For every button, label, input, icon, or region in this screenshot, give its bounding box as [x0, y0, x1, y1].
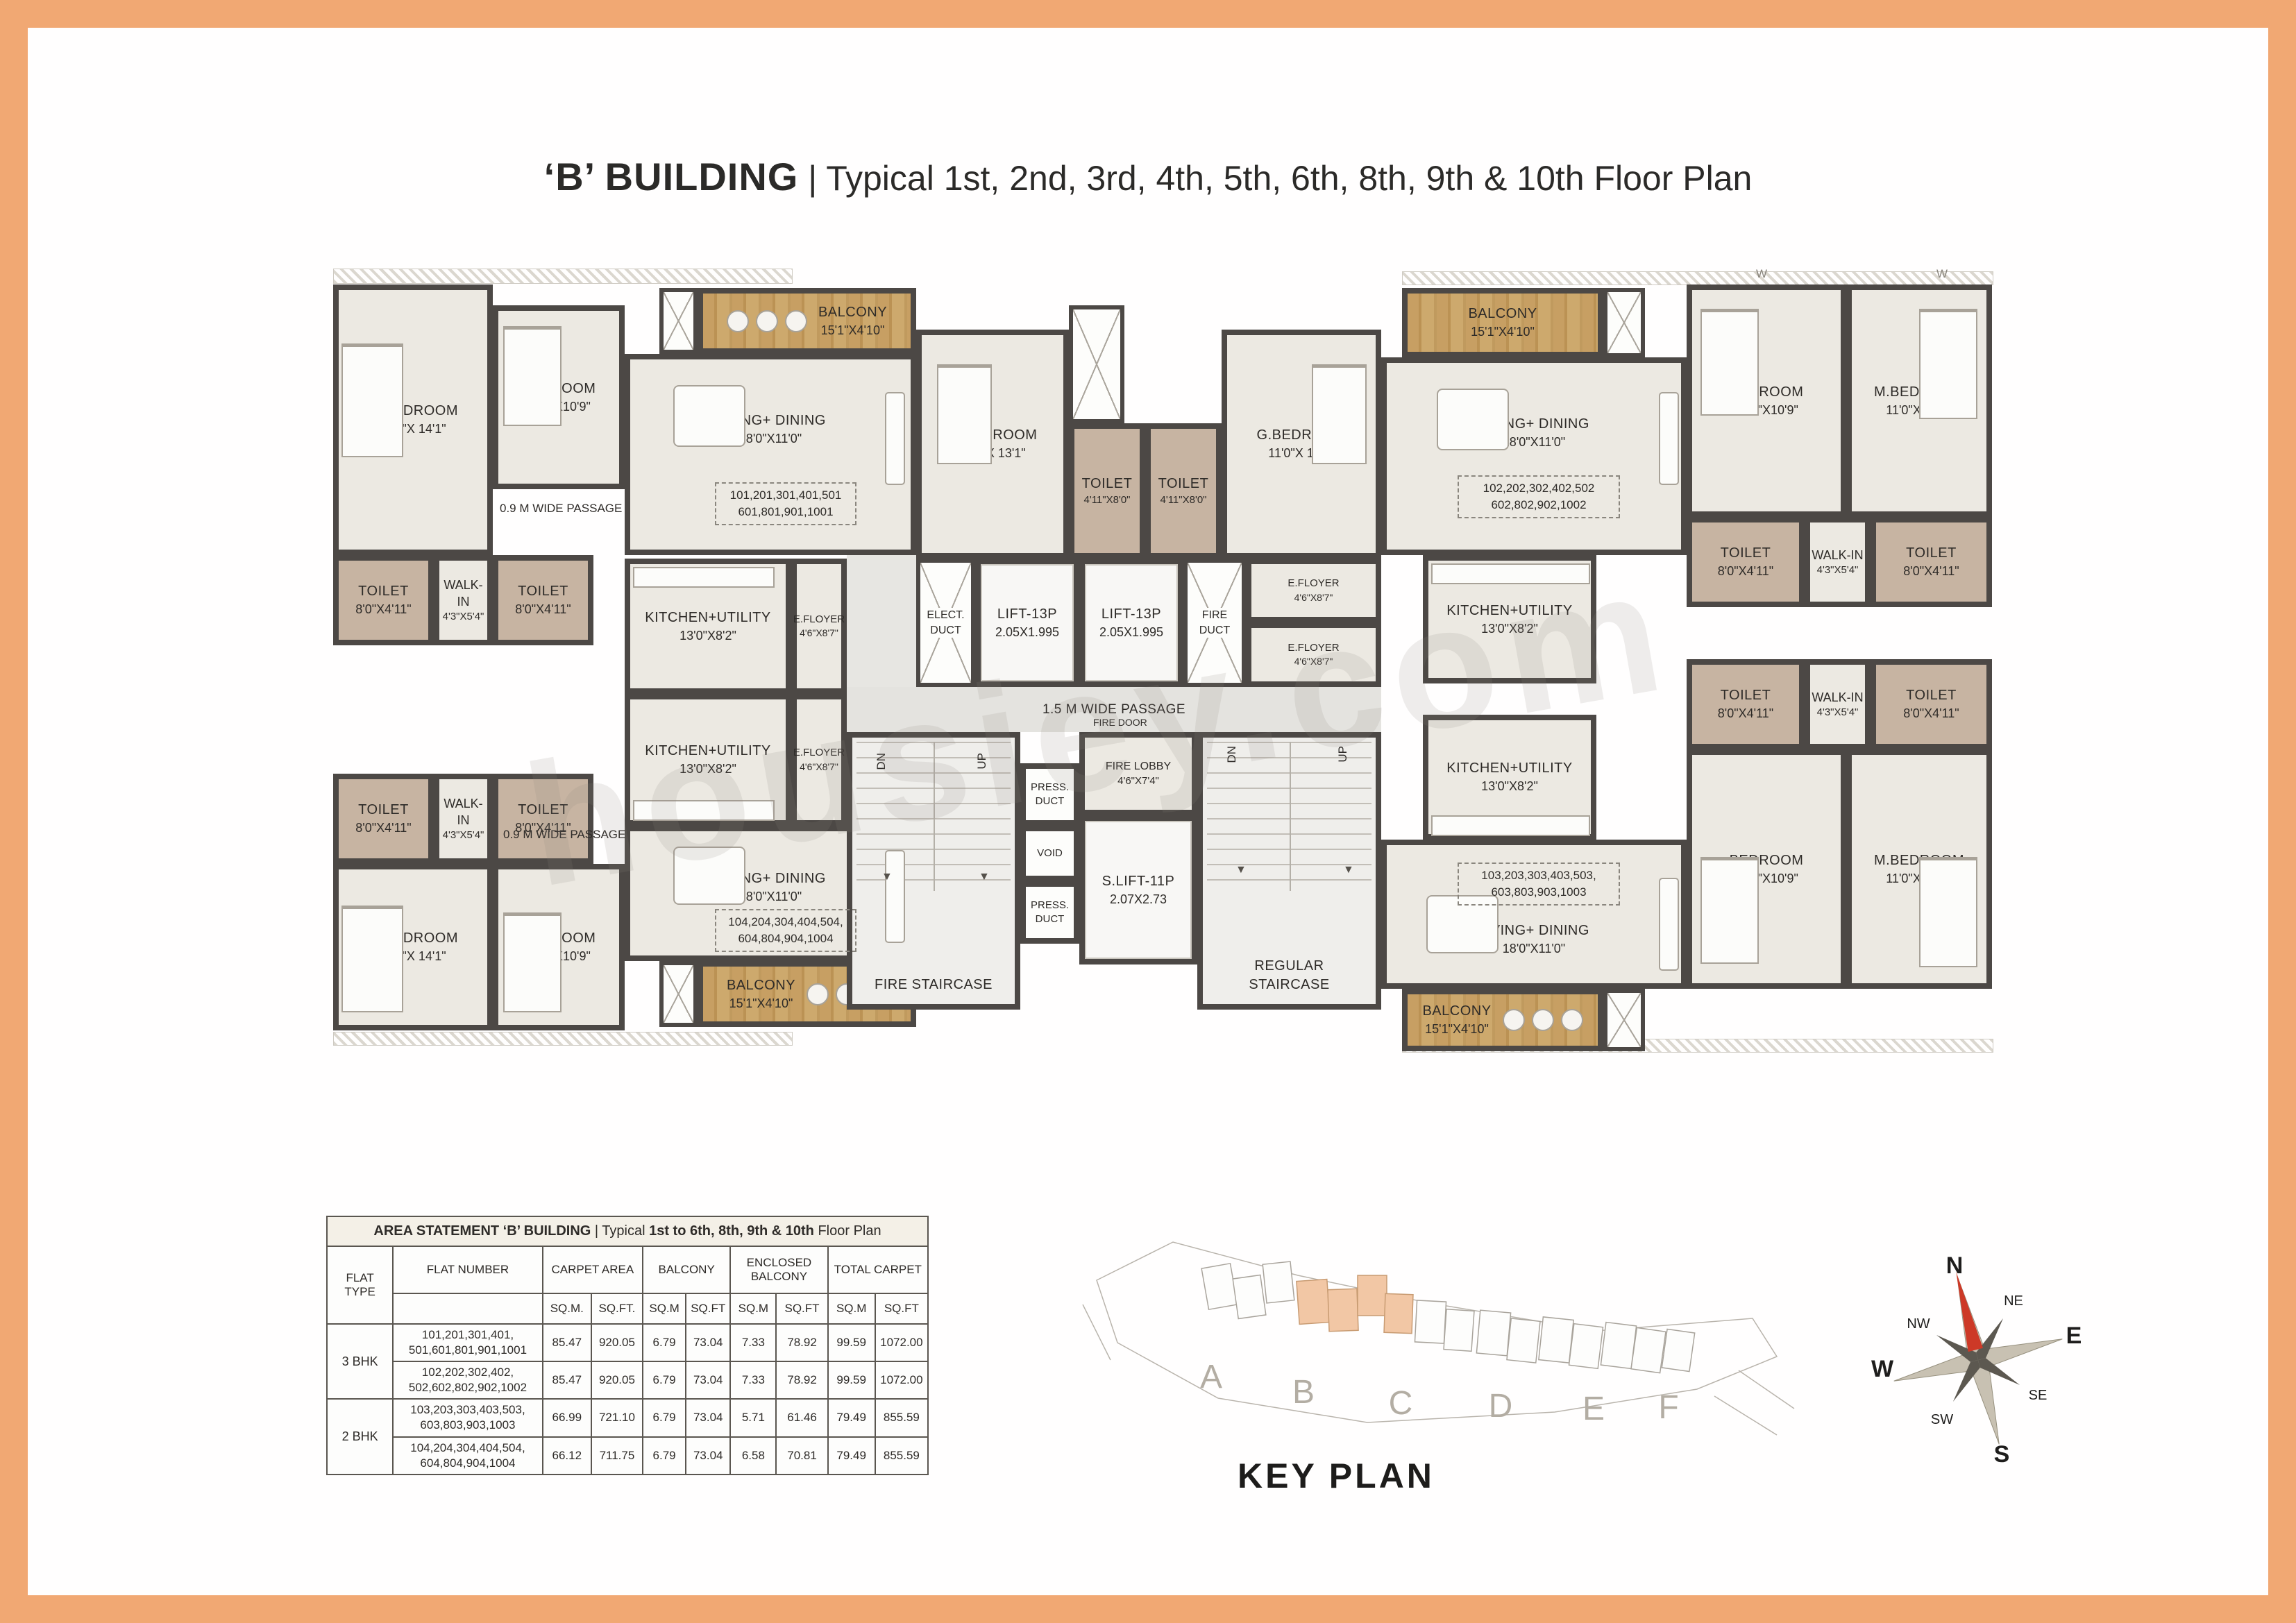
flat-number-line: 103,203,303,403,503, [1481, 867, 1596, 884]
room-label: BALCONY [727, 976, 795, 995]
value-cell: 79.49 [828, 1399, 875, 1436]
flat-number-line: 602,802,902,1002 [1491, 497, 1586, 513]
room-dims: 4'3"X5'4" [443, 829, 484, 842]
kitchen-counter [633, 800, 775, 821]
key-plan-letter: D [1489, 1388, 1513, 1425]
stair-up-label: UP [975, 753, 989, 770]
col-header: FLAT NUMBER [393, 1246, 542, 1293]
lift-dims: 2.07X2.73 [1110, 891, 1167, 908]
table-row: 2 BHK 103,203,303,403,503,603,803,903,10… [327, 1399, 928, 1436]
room-label: TOILET [518, 582, 568, 601]
service-lift: S.LIFT-11P 2.07X2.73 [1079, 815, 1197, 965]
sub-header: SQ.FT [686, 1293, 730, 1324]
electrical-duct: ELECT. DUCT [916, 559, 975, 687]
room-label: KITCHEN+UTILITY [645, 609, 770, 627]
compass-se: SE [2029, 1388, 2048, 1403]
compass-nw: NW [1907, 1316, 1930, 1332]
stair-dn-label: DN [875, 753, 888, 770]
flat-numbers-103: 103,203,303,403,503, 603,803,903,1003 [1458, 863, 1620, 906]
value-cell: 99.59 [828, 1324, 875, 1361]
room-toilet-common-2: TOILET 4'11"X8'0" [1145, 423, 1222, 559]
room-label: WALK-IN [439, 795, 487, 829]
compass-e: E [2066, 1323, 2082, 1349]
room-label: E.FLOYER [1288, 641, 1339, 655]
key-plan-map: A B C D E F [1069, 1214, 1818, 1450]
room-dims: 15'1"X4'10" [729, 995, 793, 1012]
void-shaft: VOID [1020, 826, 1079, 881]
room-label: FIRE LOBBY [1106, 759, 1171, 774]
room-toilet-104a: TOILET 8'0"X4'11" [333, 774, 434, 864]
flat-number-cell: 101,201,301,401,501,601,801,901,1001 [393, 1324, 542, 1361]
bed-furniture [1919, 857, 1977, 967]
value-cell: 79.49 [828, 1437, 875, 1475]
room-dims: 8'0"X4'11" [355, 601, 411, 618]
room-label: WALK-IN [439, 577, 487, 611]
flat-number-line: 604,804,904,1004 [738, 931, 833, 947]
value-cell: 66.12 [543, 1437, 591, 1475]
table-title-bold: AREA STATEMENT ‘B’ BUILDING [373, 1223, 591, 1239]
duct-label: DUCT [930, 623, 961, 638]
stair-label: STAIRCASE [1249, 976, 1329, 994]
room-label: WALK-IN [1812, 689, 1863, 706]
room-efloyer-101: E.FLOYER 4'6"X8'7" [791, 559, 847, 694]
room-balcony-102: BALCONY 15'1"X4'10" [1402, 288, 1603, 357]
room-balcony-103: BALCONY 15'1"X4'10" [1402, 989, 1603, 1051]
stair-label: REGULAR [1254, 957, 1324, 976]
table-row: 104,204,304,404,504,604,804,904,1004 66.… [327, 1437, 928, 1475]
compass-w: W [1871, 1356, 1894, 1382]
value-cell: 920.05 [591, 1324, 643, 1361]
room-walkin-104: WALK-IN 4'3"X5'4" [434, 774, 493, 864]
room-walkin-102: WALK-IN 4'3"X5'4" [1805, 517, 1871, 607]
sofa [1659, 392, 1679, 485]
compass-n: N [1946, 1252, 1964, 1279]
room-dims: 4'11"X8'0" [1160, 493, 1207, 507]
room-toilet-103b: TOILET 8'0"X4'11" [1871, 659, 1992, 749]
room-dims: 4'3"X5'4" [1817, 563, 1859, 577]
fire-lobby: FIRE LOBBY 4'6"X7'4" [1079, 732, 1197, 815]
window-label: W [1936, 267, 1948, 281]
sub-header: SQ.M. [543, 1293, 591, 1324]
duct-label: FIRE [1202, 608, 1227, 623]
value-cell: 7.33 [730, 1361, 776, 1399]
duct-label: PRESS. [1031, 899, 1069, 912]
value-cell: 66.99 [543, 1399, 591, 1436]
value-cell: 6.79 [643, 1399, 686, 1436]
shaft-duct [659, 288, 698, 354]
room-toilet-101a: TOILET 8'0"X4'11" [333, 555, 434, 645]
stair-dn-label: DN [1225, 746, 1239, 763]
sub-header-empty [393, 1293, 542, 1324]
sub-header: SQ.FT [776, 1293, 827, 1324]
room-label: E.FLOYER [1288, 577, 1339, 590]
room-toilet-102a: TOILET 8'0"X4'11" [1687, 517, 1805, 607]
flat-number-cell: 104,204,304,404,504,604,804,904,1004 [393, 1437, 542, 1475]
exterior-hatch [333, 1032, 793, 1046]
room-label: KITCHEN+UTILITY [1446, 759, 1572, 778]
sub-header: SQ.M [828, 1293, 875, 1324]
col-header: FLAT TYPE [327, 1246, 393, 1324]
room-label: E.FLOYER [793, 613, 845, 627]
bed-furniture [1919, 309, 1977, 419]
value-cell: 6.58 [730, 1437, 776, 1475]
room-dims: 4'3"X5'4" [1817, 706, 1859, 720]
duct-label: PRESS. [1031, 781, 1069, 794]
room-balcony-101: BALCONY 15'1"X4'10" [698, 288, 916, 354]
stair-arrow: ▼ [1343, 864, 1354, 876]
sub-header: SQ.M [643, 1293, 686, 1324]
room-label: TOILET [1082, 475, 1133, 493]
flat-type-cell: 3 BHK [327, 1324, 393, 1399]
table-title-bold: 1st to 6th, 8th, 9th & 10th [649, 1223, 814, 1239]
bed-furniture [503, 326, 562, 426]
sub-header: SQ.M [730, 1293, 776, 1324]
key-plan-title: KEY PLAN [1238, 1456, 1435, 1496]
col-header: TOTAL CARPET [828, 1246, 928, 1293]
value-cell: 711.75 [591, 1437, 643, 1475]
key-plan-b-highlight [1297, 1275, 1413, 1334]
value-cell: 73.04 [686, 1399, 730, 1436]
floor-plan-drawing: 1.5 M WIDE PASSAGE M.BEDROOM 11'0"X 14'1… [326, 267, 1992, 1058]
shaft-duct [1603, 288, 1645, 357]
room-label: TOILET [1721, 544, 1771, 563]
lift-2: LIFT-13P 2.05X1.995 [1079, 559, 1183, 687]
room-dims: 4'6"X8'7" [1294, 655, 1333, 668]
lift-dims: 2.05X1.995 [1099, 624, 1163, 640]
value-cell: 6.79 [643, 1437, 686, 1475]
room-label: TOILET [1158, 475, 1209, 493]
bed-furniture [503, 912, 562, 1012]
value-cell: 78.92 [776, 1324, 827, 1361]
room-label: BALCONY [1422, 1002, 1491, 1021]
room-walkin-101: WALK-IN 4'3"X5'4" [434, 555, 493, 645]
kitchen-counter [633, 567, 775, 588]
value-cell: 1072.00 [875, 1361, 928, 1399]
value-cell: 85.47 [543, 1324, 591, 1361]
room-dims: 13'0"X8'2" [1481, 620, 1538, 637]
kitchen-counter [1431, 815, 1590, 836]
window-label: W [1756, 267, 1767, 281]
room-efloyer-103: E.FLOYER 4'6"X8'7" [1246, 622, 1381, 687]
passage-label: 0.9 M WIDE PASSAGE [503, 828, 625, 842]
room-efloyer-104: E.FLOYER 4'6"X8'7" [791, 694, 847, 826]
value-cell: 855.59 [875, 1437, 928, 1475]
value-cell: 855.59 [875, 1399, 928, 1436]
press-duct-2: PRESS. DUCT [1020, 881, 1079, 944]
bed-furniture [937, 364, 992, 464]
compass-rose: N E S W NE SE SW NW [1864, 1246, 2093, 1475]
stair-label: FIRE STAIRCASE [875, 976, 993, 994]
room-dims: 15'1"X4'10" [1425, 1021, 1489, 1037]
exterior-hatch [333, 269, 793, 284]
compass-sw: SW [1931, 1412, 1953, 1427]
table-title: AREA STATEMENT ‘B’ BUILDING | Typical 1s… [327, 1216, 928, 1246]
key-plan-letter: E [1582, 1391, 1605, 1427]
room-dims: 4'6"X8'7" [800, 627, 838, 640]
table-title-normal: | Typical [591, 1223, 649, 1239]
value-cell: 6.79 [643, 1324, 686, 1361]
exterior-hatch [1402, 271, 1993, 285]
sub-header: SQ.FT [875, 1293, 928, 1324]
flat-type-cell: 2 BHK [327, 1399, 393, 1474]
room-toilet-103a: TOILET 8'0"X4'11" [1687, 659, 1805, 749]
lift-1: LIFT-13P 2.05X1.995 [975, 559, 1079, 687]
page-title: ‘B’ BUILDING | Typical 1st, 2nd, 3rd, 4t… [0, 154, 2296, 199]
flat-number-line: 102,202,302,402,502 [1483, 480, 1595, 497]
room-dims: 18'0"X11'0" [739, 888, 802, 905]
stair-arrow: ▼ [1235, 864, 1247, 876]
lift-label: S.LIFT-11P [1102, 872, 1175, 891]
dining-table [1437, 389, 1509, 450]
flat-numbers-101: 101,201,301,401,501 601,801,901,1001 [715, 482, 856, 525]
dining-table [673, 385, 745, 447]
room-label: TOILET [358, 801, 409, 819]
room-dims: 4'11"X8'0" [1084, 493, 1131, 507]
stair-up-label: UP [1336, 746, 1350, 763]
room-label: KITCHEN+UTILITY [645, 742, 770, 760]
flat-number-line: 603,803,903,1003 [1491, 884, 1586, 901]
lift-dims: 2.05X1.995 [995, 624, 1059, 640]
room-dims: 18'0"X11'0" [1503, 434, 1565, 450]
value-cell: 73.04 [686, 1324, 730, 1361]
flat-number-cell: 102,202,302,402,502,602,802,902,1002 [393, 1361, 542, 1399]
flat-number-line: 601,801,901,1001 [738, 504, 833, 520]
flat-numbers-104: 104,204,304,404,504, 604,804,904,1004 [715, 909, 856, 952]
bed-furniture [341, 906, 403, 1012]
col-header: BALCONY [643, 1246, 730, 1293]
shaft-duct [1069, 305, 1124, 423]
room-dims: 4'6"X8'7" [800, 760, 838, 774]
room-label: TOILET [518, 801, 568, 819]
value-cell: 99.59 [828, 1361, 875, 1399]
flat-number-line: 104,204,304,404,504, [728, 914, 843, 931]
room-label: BALCONY [818, 303, 887, 322]
stair-arrow: ▼ [979, 871, 990, 883]
room-walkin-103: WALK-IN 4'3"X5'4" [1805, 659, 1871, 749]
room-label: WALK-IN [1812, 547, 1863, 563]
dining-table [673, 847, 745, 905]
shaft-duct [659, 961, 698, 1027]
room-dims: 4'6"X8'7" [1294, 591, 1333, 604]
bed-furniture [1700, 309, 1759, 416]
passage-label: 0.9 M WIDE PASSAGE [500, 502, 622, 516]
room-dims: 8'0"X4'11" [355, 819, 411, 836]
area-statement-table: AREA STATEMENT ‘B’ BUILDING | Typical 1s… [326, 1216, 929, 1475]
value-cell: 5.71 [730, 1399, 776, 1436]
room-efloyer-102: E.FLOYER 4'6"X8'7" [1246, 559, 1381, 622]
sub-header: SQ.FT. [591, 1293, 643, 1324]
room-toilet-104b: TOILET 8'0"X4'11" [493, 774, 593, 864]
col-header: ENCLOSED BALCONY [730, 1246, 827, 1293]
flat-number-line: 101,201,301,401,501 [730, 487, 842, 504]
room-dims: 8'0"X4'11" [1903, 705, 1959, 722]
table-subheader-row: SQ.M. SQ.FT. SQ.M SQ.FT SQ.M SQ.FT SQ.M … [327, 1293, 928, 1324]
fire-duct: FIRE DUCT [1183, 559, 1246, 687]
value-cell: 85.47 [543, 1361, 591, 1399]
room-label: TOILET [1906, 544, 1957, 563]
table-header-row: FLAT TYPE FLAT NUMBER CARPET AREA BALCON… [327, 1246, 928, 1293]
room-label: TOILET [1906, 686, 1957, 705]
duct-label: DUCT [1036, 794, 1065, 808]
table-title-normal: Floor Plan [814, 1223, 881, 1239]
room-toilet-101b: TOILET 8'0"X4'11" [493, 555, 593, 645]
value-cell: 1072.00 [875, 1324, 928, 1361]
press-duct-1: PRESS. DUCT [1020, 763, 1079, 826]
value-cell: 6.79 [643, 1361, 686, 1399]
kitchen-counter [1431, 563, 1590, 584]
room-dims: 13'0"X8'2" [679, 627, 736, 644]
sofa [1659, 878, 1679, 971]
shaft-duct [1603, 989, 1645, 1051]
room-label: TOILET [1721, 686, 1771, 705]
value-cell: 73.04 [686, 1361, 730, 1399]
value-cell: 73.04 [686, 1437, 730, 1475]
table-row: 102,202,302,402,502,602,802,902,1002 85.… [327, 1361, 928, 1399]
fire-door-label: FIRE DOOR [1093, 717, 1147, 728]
value-cell: 78.92 [776, 1361, 827, 1399]
floor-plan-subtitle: | Typical 1st, 2nd, 3rd, 4th, 5th, 6th, … [798, 159, 1752, 198]
flat-numbers-102: 102,202,302,402,502 602,802,902,1002 [1458, 475, 1620, 518]
sofa [885, 392, 905, 485]
value-cell: 7.33 [730, 1324, 776, 1361]
bed-furniture [1700, 857, 1759, 964]
lift-label: LIFT-13P [1101, 605, 1161, 624]
duct-label: ELECT. [927, 608, 964, 623]
duct-label: DUCT [1199, 623, 1230, 638]
room-dims: 18'0"X11'0" [1503, 940, 1565, 957]
lift-label: LIFT-13P [997, 605, 1057, 624]
room-dims: 8'0"X4'11" [1718, 705, 1773, 722]
room-living-dining-102: LIVING+ DINING 18'0"X11'0" [1381, 357, 1687, 555]
room-label: BALCONY [1468, 305, 1537, 323]
room-toilet-common-1: TOILET 4'11"X8'0" [1069, 423, 1145, 559]
value-cell: 61.46 [776, 1399, 827, 1436]
fire-staircase: FIRE STAIRCASE [847, 732, 1020, 1010]
room-dims: 15'1"X4'10" [1471, 323, 1535, 340]
room-dims: 15'1"X4'10" [821, 322, 885, 339]
duct-label: DUCT [1036, 912, 1065, 926]
stair-arrow: ▼ [881, 871, 893, 883]
balcony-chairs [1503, 1009, 1583, 1031]
key-plan-letter: B [1292, 1374, 1315, 1411]
room-dims: 13'0"X8'2" [679, 760, 736, 777]
key-plan-letter: C [1389, 1385, 1413, 1422]
room-label: TOILET [358, 582, 409, 601]
compass-ne: NE [2004, 1293, 2023, 1309]
key-plan-letter: F [1658, 1389, 1678, 1426]
value-cell: 70.81 [776, 1437, 827, 1475]
room-label: E.FLOYER [793, 746, 845, 760]
balcony-chairs [727, 310, 807, 332]
room-label: KITCHEN+UTILITY [1446, 602, 1572, 620]
building-name: ‘B’ BUILDING [544, 155, 799, 198]
room-toilet-102b: TOILET 8'0"X4'11" [1871, 517, 1992, 607]
room-dims: 13'0"X8'2" [1481, 778, 1538, 794]
bed-furniture [341, 343, 403, 457]
flat-number-cell: 103,203,303,403,503,603,803,903,1003 [393, 1399, 542, 1436]
room-dims: 8'0"X4'11" [1718, 563, 1773, 579]
value-cell: 721.10 [591, 1399, 643, 1436]
duct-label: VOID [1037, 847, 1063, 860]
sofa [885, 850, 905, 943]
passage-label: 1.5 M WIDE PASSAGE [1043, 702, 1185, 717]
compass-s: S [1994, 1441, 2010, 1468]
room-dims: 18'0"X11'0" [739, 430, 802, 447]
room-dims: 4'3"X5'4" [443, 610, 484, 624]
room-dims: 4'6"X7'4" [1117, 774, 1159, 788]
col-header: CARPET AREA [543, 1246, 643, 1293]
bed-furniture [1312, 364, 1367, 464]
key-plan-letter: A [1200, 1359, 1222, 1395]
table-row: 3 BHK 101,201,301,401,501,601,801,901,10… [327, 1324, 928, 1361]
value-cell: 920.05 [591, 1361, 643, 1399]
room-dims: 8'0"X4'11" [1903, 563, 1959, 579]
floor-plan-page: ‘B’ BUILDING | Typical 1st, 2nd, 3rd, 4t… [0, 0, 2296, 1623]
room-dims: 8'0"X4'11" [515, 601, 571, 618]
table-title-row: AREA STATEMENT ‘B’ BUILDING | Typical 1s… [327, 1216, 928, 1246]
